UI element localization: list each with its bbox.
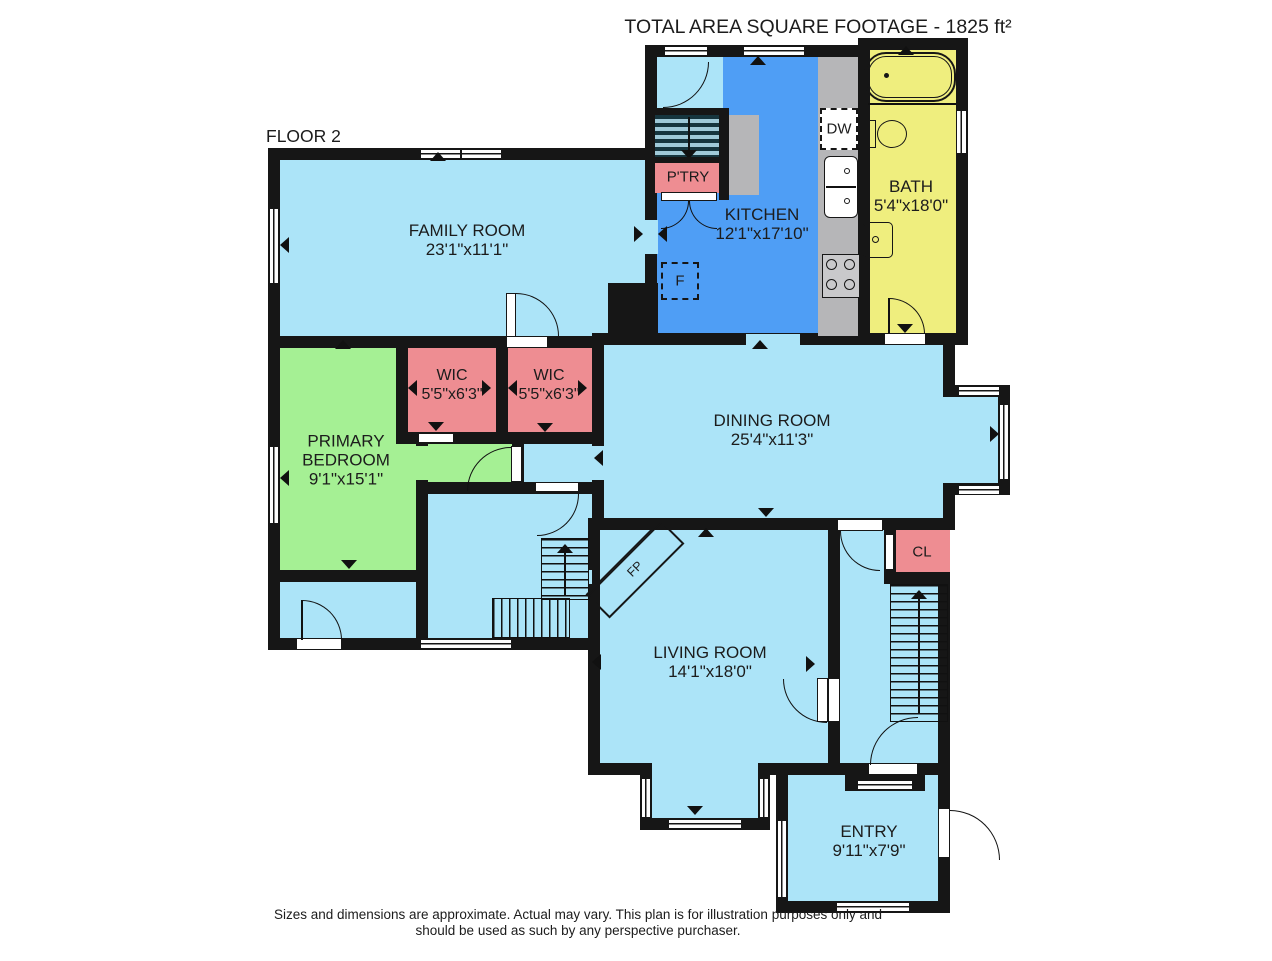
pantry-door-sill bbox=[661, 192, 717, 201]
opening-marker bbox=[482, 380, 491, 396]
entry-door-leaf bbox=[938, 808, 950, 858]
dishwasher-label: DW bbox=[827, 120, 852, 139]
window bbox=[958, 485, 1000, 495]
window bbox=[668, 819, 742, 829]
bath-label: BATH 5'4"x18'0" bbox=[874, 177, 948, 215]
pantry-label: P'TRY bbox=[667, 168, 710, 187]
opening-marker bbox=[658, 226, 667, 242]
fireplace-label: FP bbox=[624, 558, 645, 579]
opening-marker bbox=[990, 426, 999, 442]
primary-bedroom-label: PRIMARY BEDROOM 9'1"x15'1" bbox=[302, 432, 390, 489]
living-door-gap bbox=[828, 678, 840, 722]
window bbox=[759, 778, 769, 818]
wic2-label: WIC 5'5"x6'3" bbox=[518, 366, 579, 404]
wall bbox=[719, 108, 729, 200]
window bbox=[999, 404, 1009, 480]
stair-arrow-line bbox=[564, 548, 566, 596]
opening-marker bbox=[335, 340, 351, 349]
opening-marker bbox=[430, 152, 446, 161]
opening-marker bbox=[508, 380, 517, 396]
window bbox=[664, 46, 708, 56]
wall bbox=[884, 572, 950, 584]
opening-marker bbox=[280, 237, 289, 253]
entry-label: ENTRY 9'11"x7'9" bbox=[832, 822, 905, 860]
wall bbox=[655, 108, 723, 115]
bath-sink-drain bbox=[872, 236, 879, 243]
tub-drain bbox=[884, 73, 889, 78]
fridge-label: F bbox=[675, 272, 684, 291]
opening-marker bbox=[750, 56, 766, 65]
opening-marker bbox=[634, 226, 643, 242]
window bbox=[743, 46, 805, 56]
window bbox=[269, 446, 279, 524]
opening-marker bbox=[408, 380, 417, 396]
bath-door-sill bbox=[884, 333, 926, 345]
opening-marker bbox=[537, 423, 553, 432]
dining-room-label: DINING ROOM 25'4"x11'3" bbox=[713, 411, 830, 449]
family-door-sill bbox=[506, 336, 548, 348]
main-staircase-lower bbox=[492, 598, 570, 638]
opening-marker bbox=[698, 528, 714, 537]
bathtub-inner bbox=[868, 56, 952, 98]
window bbox=[956, 110, 967, 154]
window bbox=[958, 386, 1000, 396]
window bbox=[420, 639, 512, 649]
stair-rail bbox=[688, 117, 690, 151]
opening-marker bbox=[594, 450, 603, 466]
opening-marker bbox=[806, 656, 815, 672]
wic1-label: WIC 5'5"x6'3" bbox=[421, 366, 482, 404]
kitchen-island bbox=[729, 115, 759, 195]
opening-marker bbox=[758, 508, 774, 517]
page-title: TOTAL AREA SQUARE FOOTAGE - 1825 ft² bbox=[624, 16, 1011, 39]
opening-marker bbox=[752, 340, 768, 349]
disclaimer: Sizes and dimensions are approximate. Ac… bbox=[274, 907, 882, 939]
closet-label: CL bbox=[912, 543, 931, 562]
wic1-door-sill bbox=[418, 433, 454, 443]
burner bbox=[826, 259, 837, 270]
vestibule-door-leaf bbox=[535, 482, 579, 492]
opening-bedroom-vestibule bbox=[414, 446, 430, 480]
toilet-bowl bbox=[877, 120, 907, 148]
window bbox=[269, 208, 279, 284]
toilet-tank bbox=[863, 120, 876, 148]
closet-door-leaf bbox=[885, 534, 894, 570]
entry-stair-arrow-line bbox=[918, 596, 920, 714]
window bbox=[641, 778, 651, 818]
burner bbox=[826, 279, 837, 290]
stair-arrow-up bbox=[557, 544, 573, 553]
sink-divider bbox=[826, 186, 856, 188]
floor-plan: FP TOTAL AREA SQUARE FOOTAGE - 1825 ft² … bbox=[0, 0, 1272, 961]
family-door-leaf bbox=[506, 293, 516, 337]
opening-living-bay bbox=[652, 763, 758, 777]
opening-marker bbox=[898, 46, 914, 55]
tub-wall-line bbox=[868, 103, 956, 105]
opening-marker bbox=[897, 324, 913, 333]
window bbox=[777, 820, 787, 898]
living-room-label: LIVING ROOM 14'1"x18'0" bbox=[653, 643, 766, 681]
corridor-door-leaf bbox=[837, 519, 883, 531]
window bbox=[461, 149, 502, 159]
entry-stair-arrow-up bbox=[911, 590, 927, 599]
entry-door-arc bbox=[950, 810, 1000, 860]
burner bbox=[844, 279, 855, 290]
kitchen-label: KITCHEN 12'1"x17'10" bbox=[715, 205, 808, 243]
opening-family-kitchen bbox=[645, 220, 658, 254]
opening-marker bbox=[687, 806, 703, 815]
family-room-label: FAMILY ROOM 23'1"x11'1" bbox=[409, 221, 526, 259]
window bbox=[857, 780, 913, 790]
sink-drain bbox=[844, 198, 850, 204]
opening-marker bbox=[341, 560, 357, 569]
opening-marker bbox=[280, 470, 289, 486]
floor-label: FLOOR 2 bbox=[266, 126, 341, 147]
opening-dining-bay bbox=[943, 397, 957, 483]
sink-drain bbox=[844, 168, 850, 174]
chimney bbox=[608, 283, 658, 340]
bedroom-door-leaf bbox=[511, 446, 522, 482]
opening-marker bbox=[592, 654, 601, 670]
burner bbox=[844, 259, 855, 270]
opening-marker bbox=[428, 422, 444, 431]
